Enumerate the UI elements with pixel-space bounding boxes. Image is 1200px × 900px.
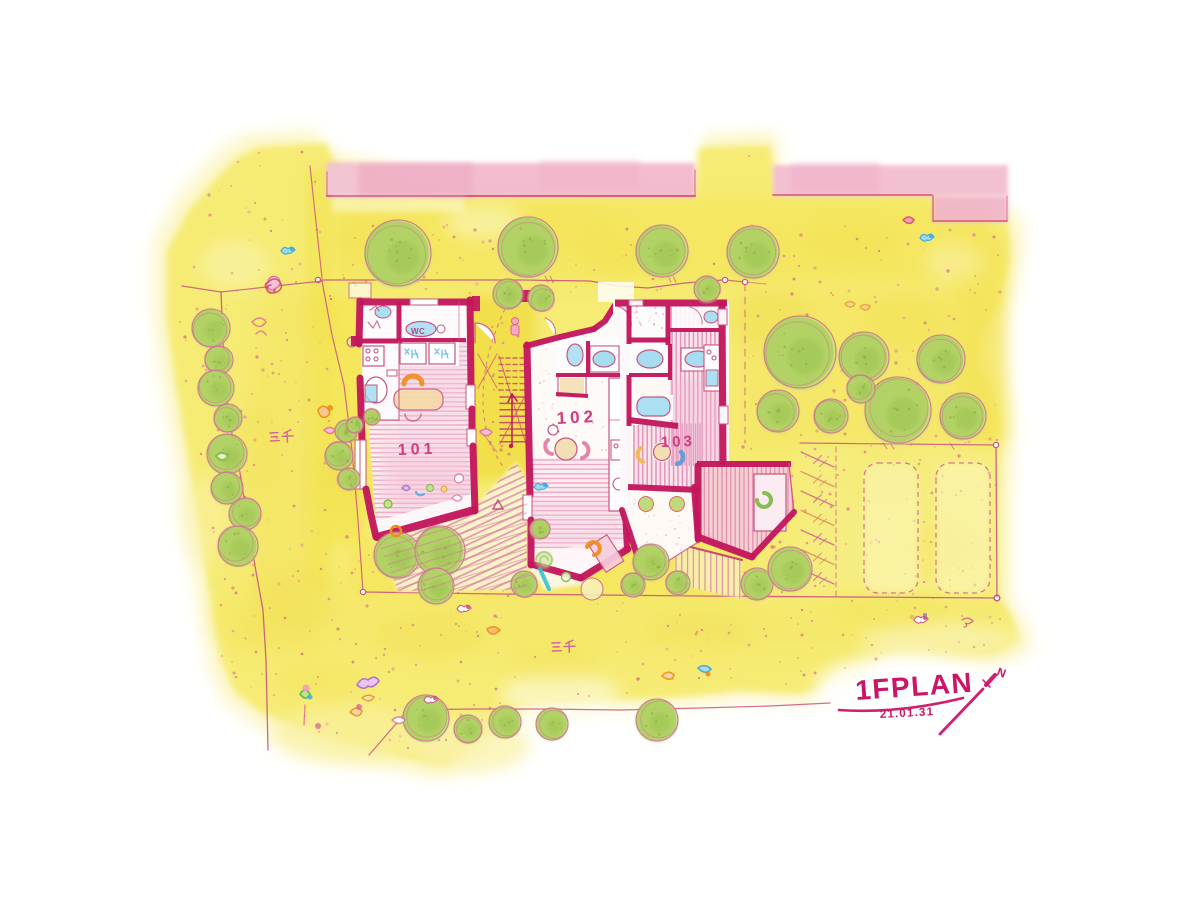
svg-text:WC: WC bbox=[411, 327, 425, 336]
svg-text:101: 101 bbox=[398, 441, 437, 459]
svg-text:102: 102 bbox=[556, 407, 597, 428]
svg-text:103: 103 bbox=[661, 433, 696, 451]
